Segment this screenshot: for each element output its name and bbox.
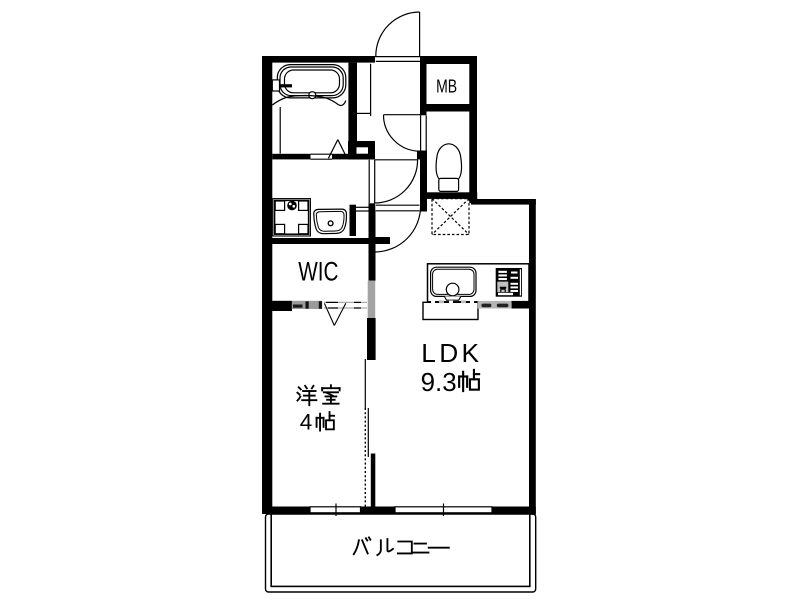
svg-text:LDK: LDK <box>421 338 479 368</box>
svg-text:9.3: 9.3 <box>421 367 457 397</box>
svg-text:MB: MB <box>436 76 457 97</box>
svg-text:WIC: WIC <box>298 257 338 287</box>
svg-text:4: 4 <box>300 410 313 435</box>
